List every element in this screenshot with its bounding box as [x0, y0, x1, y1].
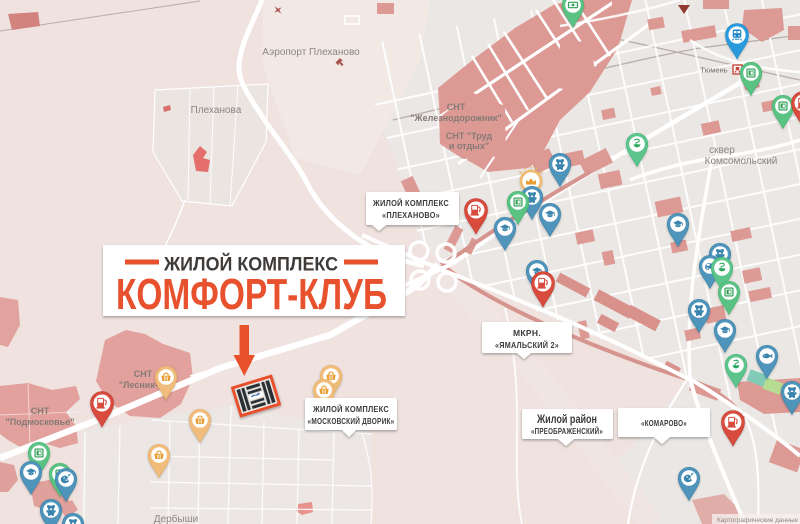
svg-text:«ПЛЕХАНОВО»: «ПЛЕХАНОВО» — [382, 210, 440, 220]
svg-text:«КОМАРОВО»: «КОМАРОВО» — [641, 418, 687, 428]
svg-text:Аэропорт Плеханово: Аэропорт Плеханово — [262, 47, 360, 58]
svg-text:Жилой район: Жилой район — [536, 414, 597, 426]
svg-text:Комсомольский: Комсомольский — [705, 156, 778, 167]
svg-text:«ПРЕОБРАЖЕНСКИЙ»: «ПРЕОБРАЖЕНСКИЙ» — [531, 425, 603, 436]
svg-text:МКРН.: МКРН. — [513, 328, 541, 338]
svg-text:"Железнодорожник": "Железнодорожник" — [410, 113, 502, 123]
svg-text:«МОСКОВСКИЙ ДВОРИК»: «МОСКОВСКИЙ ДВОРИК» — [308, 415, 395, 426]
svg-text:Дербыши: Дербыши — [154, 513, 198, 524]
svg-text:ЖИЛОЙ КОМПЛЕКС: ЖИЛОЙ КОМПЛЕКС — [312, 403, 389, 414]
svg-text:«ЯМАЛЬСКИЙ 2»: «ЯМАЛЬСКИЙ 2» — [495, 339, 559, 350]
svg-text:КОМФОРТ-КЛУБ: КОМФОРТ-КЛУБ — [116, 270, 387, 319]
svg-text:СНТ: СНТ — [134, 369, 153, 379]
svg-text:"Подмосковье": "Подмосковье" — [6, 417, 75, 427]
svg-text:ЖИЛОЙ КОМПЛЕКС: ЖИЛОЙ КОМПЛЕКС — [372, 197, 449, 208]
svg-text:Картографические данные: Картографические данные — [717, 517, 798, 524]
svg-text:Плеханова: Плеханова — [191, 105, 242, 116]
svg-text:и отдых": и отдых" — [449, 141, 489, 151]
svg-text:Тюмень: Тюмень — [700, 66, 727, 75]
svg-text:СНТ: СНТ — [447, 102, 466, 112]
svg-text:СНТ: СНТ — [31, 406, 50, 416]
svg-text:сквер: сквер — [709, 145, 735, 156]
svg-text:СНТ "Труд: СНТ "Труд — [446, 131, 493, 141]
